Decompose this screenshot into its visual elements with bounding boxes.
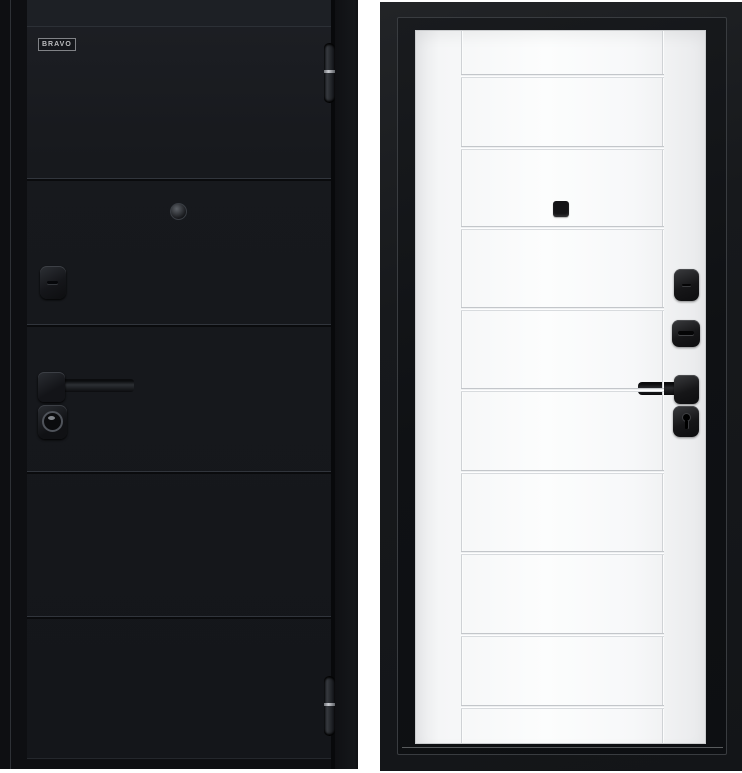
hinge-top [324, 43, 335, 103]
cylinder-cap [48, 416, 55, 420]
lock-escutcheon [672, 320, 700, 347]
panel-groove-chrome [461, 307, 664, 311]
keyhole-slot [47, 281, 58, 284]
panel-groove-chrome [461, 388, 664, 392]
panel-groove-chrome [461, 551, 664, 555]
hinge-band [324, 703, 335, 706]
panel-groove-chrome [461, 470, 664, 474]
panel-groove [27, 616, 331, 619]
peephole-icon [553, 201, 569, 217]
keyhole-escutcheon [40, 266, 66, 299]
panel-groove-chrome [461, 146, 664, 150]
thumbturn-knob [682, 284, 691, 286]
lock-slot [678, 331, 694, 335]
handle-rosette [38, 372, 65, 402]
panel-groove [27, 324, 331, 327]
exterior-door-leaf: BRAVO [27, 27, 331, 758]
handle-rosette [674, 375, 699, 404]
keyhole-stem [685, 420, 688, 429]
interior-door-leaf [416, 31, 705, 743]
panel-groove [27, 178, 331, 181]
brand-logo: BRAVO [38, 38, 76, 51]
frame-bottom-highlight [402, 747, 723, 748]
panel-groove-chrome [461, 74, 664, 78]
door-frame-top [27, 0, 358, 27]
panel-groove [27, 471, 331, 474]
hinge-band [324, 70, 335, 73]
product-image: BRAVO [0, 0, 742, 773]
lever-handle [61, 379, 134, 392]
cylinder-ring [42, 411, 63, 432]
exterior-door-photo: BRAVO [0, 0, 358, 769]
frame-edge-highlight [10, 0, 11, 769]
panel-groove-chrome [461, 226, 664, 230]
panel-groove-chrome [461, 705, 664, 709]
cylinder-escutcheon [673, 406, 699, 437]
panel-groove-chrome [461, 633, 664, 637]
thumbturn-escutcheon [674, 269, 699, 301]
interior-door-photo [380, 2, 742, 771]
hinge-bottom [324, 676, 335, 736]
door-frame-right [335, 0, 358, 769]
peephole-icon [170, 203, 187, 220]
cylinder-lock [38, 405, 67, 439]
